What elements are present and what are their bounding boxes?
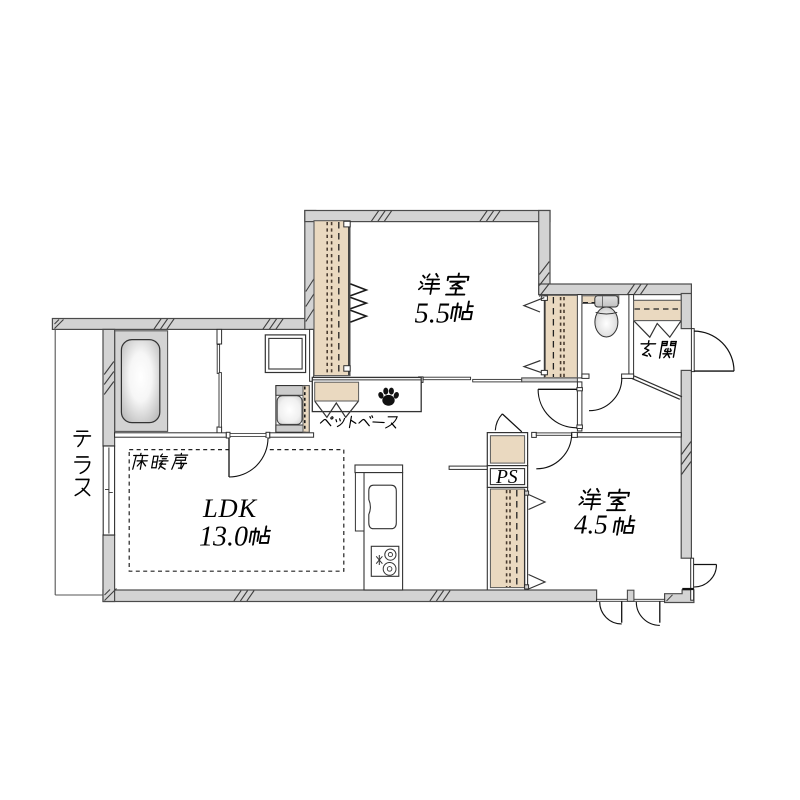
svg-text:LDK: LDK	[202, 493, 257, 523]
svg-text:13.0: 13.0	[199, 522, 248, 553]
svg-text:4.5: 4.5	[574, 510, 608, 540]
svg-text:5.5: 5.5	[415, 299, 451, 330]
svg-text:PS: PS	[495, 467, 518, 488]
